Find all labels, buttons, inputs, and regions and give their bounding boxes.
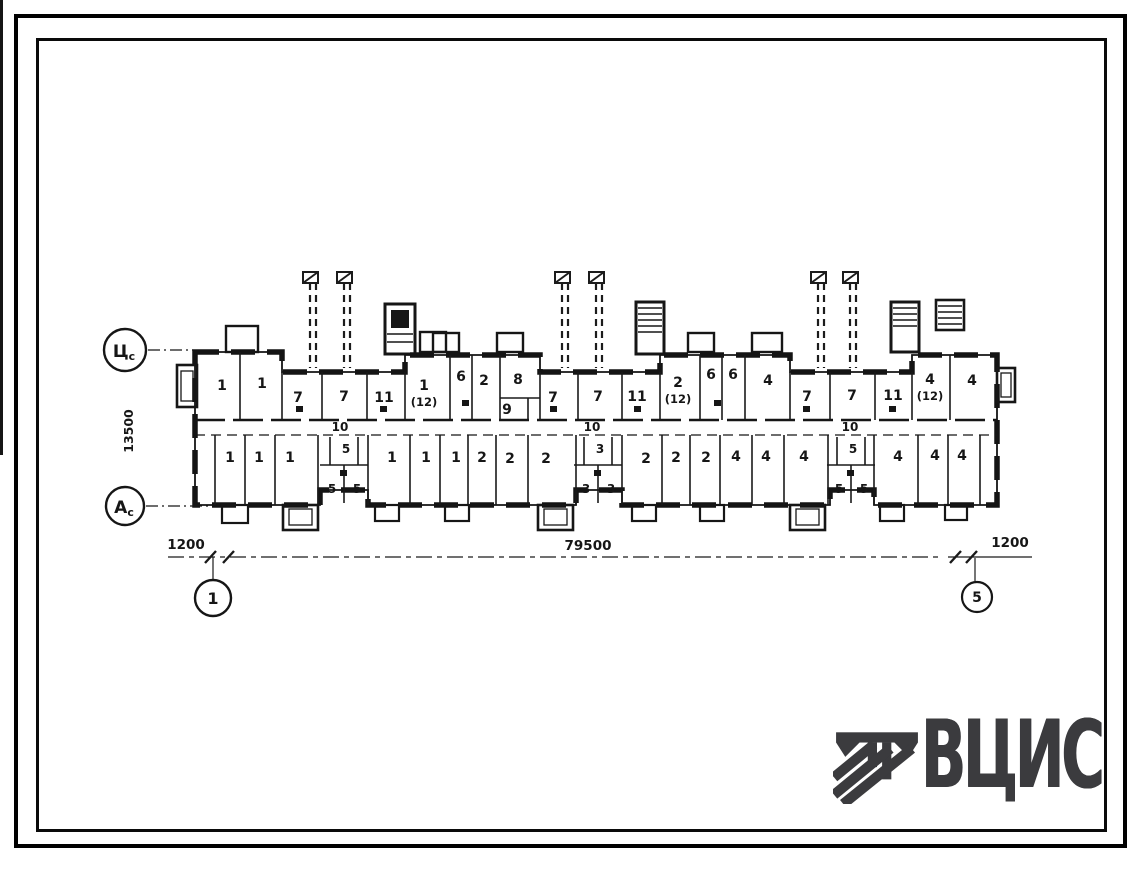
org-logo-text: ВЦИС	[921, 714, 1102, 798]
org-logo: ВЦИС	[833, 714, 1139, 804]
column-with-diagonal-stripes-icon	[833, 722, 921, 804]
scan-edge-artifact	[0, 0, 3, 455]
drawing-sheet: Цс Ас 13500 1200 79500 1200 1 5	[0, 0, 1139, 869]
